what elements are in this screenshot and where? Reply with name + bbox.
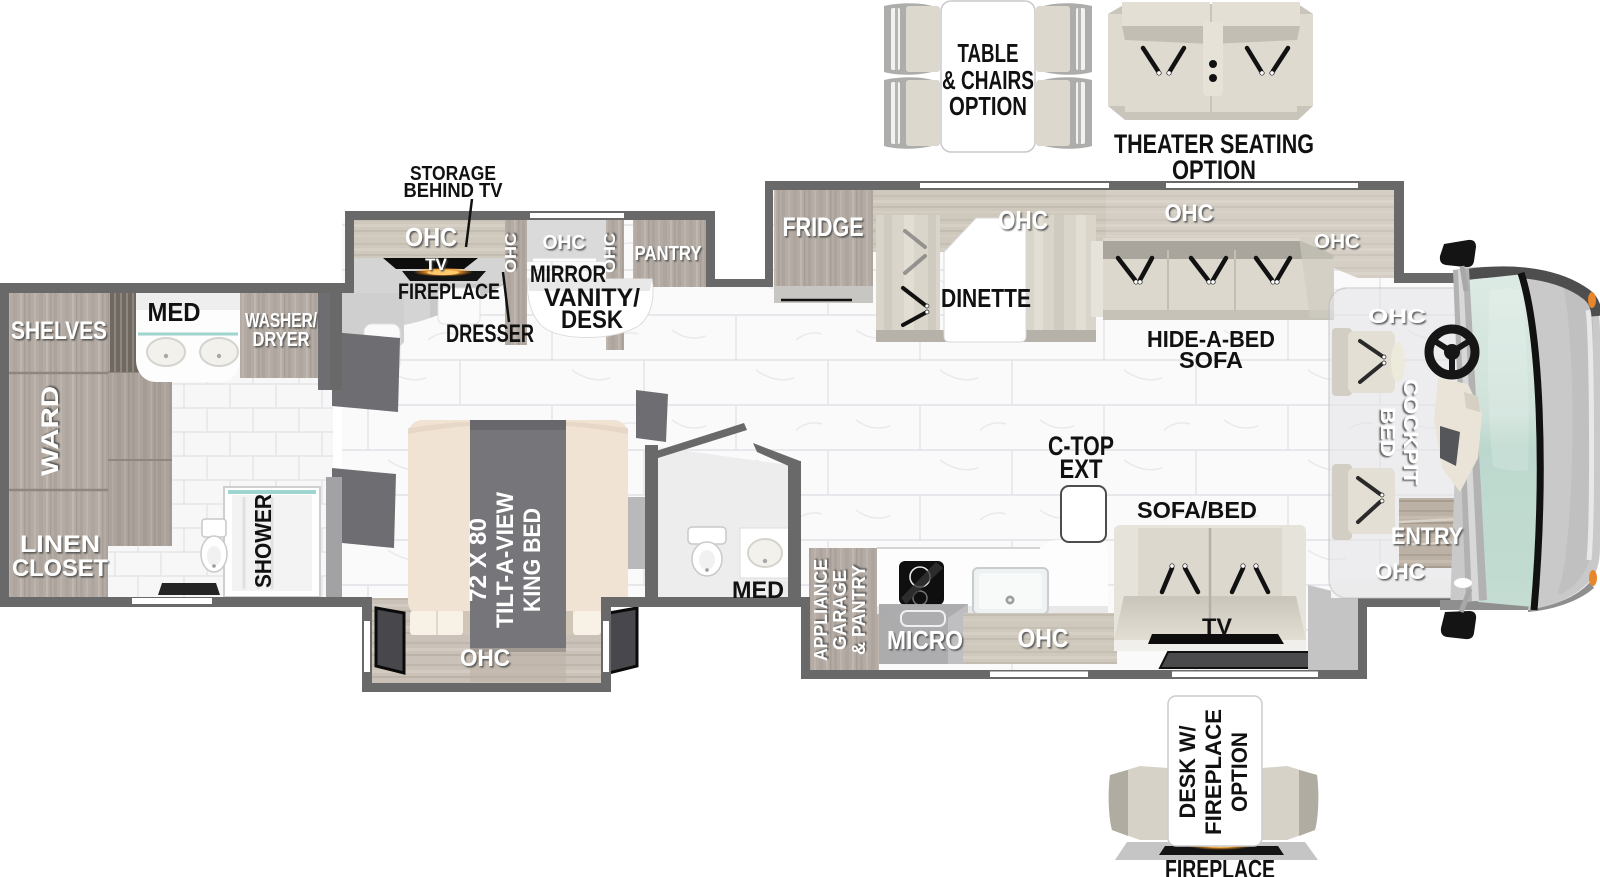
svg-text:BED: BED [1376, 407, 1398, 457]
svg-text:DESK W/: DESK W/ [1175, 726, 1200, 819]
svg-text:PANTRY: PANTRY [635, 243, 703, 265]
svg-text:OHC: OHC [998, 205, 1048, 235]
svg-text:ENTRY: ENTRY [1391, 523, 1463, 550]
svg-text:TV: TV [425, 255, 447, 274]
svg-text:EXT: EXT [1060, 454, 1103, 484]
svg-text:FIREPLACE: FIREPLACE [1201, 709, 1226, 835]
svg-text:TILT-A-VIEW: TILT-A-VIEW [492, 492, 519, 628]
svg-text:DINETTE: DINETTE [941, 283, 1031, 313]
svg-text:FIREPLACE: FIREPLACE [1165, 854, 1275, 877]
svg-text:OHC: OHC [1368, 306, 1426, 328]
svg-text:MICRO: MICRO [887, 625, 963, 655]
svg-text:OHC: OHC [1018, 623, 1069, 653]
svg-text:LINEN: LINEN [20, 531, 100, 558]
svg-text:OHC: OHC [1375, 559, 1425, 584]
svg-text:OPTION: OPTION [1172, 155, 1256, 185]
svg-text:OPTION: OPTION [949, 91, 1027, 121]
svg-text:COCKPIT: COCKPIT [1399, 379, 1421, 485]
svg-text:DRESSER: DRESSER [446, 320, 534, 348]
svg-text:OPTION: OPTION [1227, 732, 1252, 812]
svg-text:SHOWER: SHOWER [250, 494, 276, 588]
svg-text:TABLE: TABLE [958, 38, 1019, 68]
svg-text:SHELVES: SHELVES [11, 317, 107, 345]
svg-text:72 X 80: 72 X 80 [465, 518, 492, 602]
svg-text:KING BED: KING BED [519, 508, 546, 612]
svg-text:DRYER: DRYER [253, 329, 310, 351]
svg-text:TV: TV [1202, 614, 1232, 639]
svg-text:OHC: OHC [405, 222, 457, 252]
svg-text:OHC: OHC [503, 233, 520, 273]
svg-text:FIREPLACE: FIREPLACE [398, 279, 500, 304]
svg-text:OHC: OHC [1314, 231, 1360, 253]
svg-text:OHC: OHC [460, 645, 510, 672]
svg-text:GARAGE: GARAGE [830, 570, 850, 650]
svg-text:BEHIND TV: BEHIND TV [404, 180, 504, 202]
svg-text:SOFA: SOFA [1179, 347, 1243, 373]
svg-text:CLOSET: CLOSET [12, 555, 108, 582]
svg-text:OHC: OHC [1165, 200, 1214, 227]
svg-text:WARD: WARD [37, 386, 64, 476]
svg-text:DESK: DESK [561, 306, 623, 334]
svg-text:SOFA/BED: SOFA/BED [1137, 497, 1257, 523]
svg-text:OHC: OHC [543, 232, 586, 254]
svg-text:APPLIANCE: APPLIANCE [811, 559, 831, 661]
svg-text:& PANTRY: & PANTRY [849, 565, 869, 655]
svg-text:MED: MED [148, 297, 201, 327]
svg-text:FRIDGE: FRIDGE [783, 212, 864, 242]
svg-text:MED: MED [732, 577, 784, 604]
